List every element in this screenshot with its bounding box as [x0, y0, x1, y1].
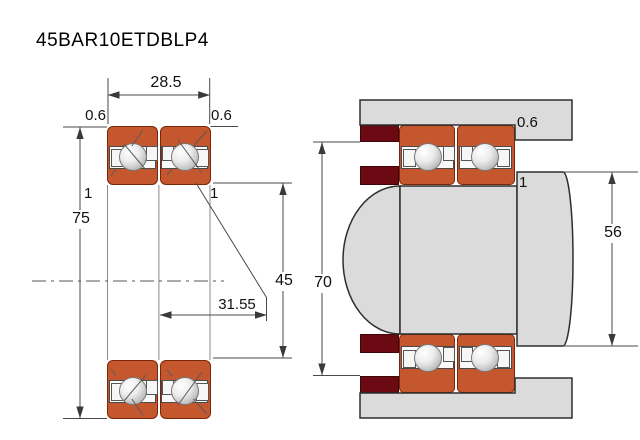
bearing-drawing: 45BAR10ETDBLP4: [0, 0, 640, 440]
bearing-ball: [171, 143, 199, 171]
outer-spacer-ring-top: [360, 125, 399, 142]
cage-pocket: [443, 146, 455, 161]
bore-outline-lines: [108, 185, 211, 360]
dim-label-spacer-bore: 70: [304, 274, 342, 293]
dim-label-housing-chamfer: 0.6: [517, 114, 538, 132]
bearing-ball: [471, 143, 499, 171]
inner-spacer-ring-bottom: [360, 334, 399, 353]
bearing-ball: [171, 377, 199, 405]
shaft-shoulder: [517, 172, 573, 346]
cage-pocket: [146, 146, 158, 161]
dim-label-shoulder: 56: [594, 224, 632, 243]
shaft-body: [400, 186, 517, 334]
dim-label-inner-chamfer-right: 1: [210, 185, 218, 203]
dim-label-chamfer-right: 0.6: [211, 107, 232, 125]
dim-label-shaft-chamfer: 1: [519, 174, 527, 192]
outer-spacer-ring-bottom: [360, 376, 399, 393]
load-center-leader: [196, 183, 267, 298]
dim-label-load-center: 31.55: [213, 296, 261, 314]
dim-label-chamfer-left: 0.6: [76, 107, 106, 125]
dim-label-width: 28.5: [138, 74, 194, 93]
bearing-ball: [414, 344, 442, 372]
bearing-ball: [471, 344, 499, 372]
part-number-title: 45BAR10ETDBLP4: [36, 30, 209, 52]
dim-label-od: 75: [62, 210, 100, 229]
inner-spacer-ring-top: [360, 166, 399, 185]
cage-pocket: [146, 380, 158, 395]
bearing-ball: [414, 143, 442, 171]
dim-label-inner-chamfer-left: 1: [84, 185, 92, 203]
cage-pocket: [443, 347, 455, 362]
shaft-left-end: [343, 186, 400, 334]
dim-label-bore: 45: [266, 272, 302, 291]
bearing-ball: [119, 143, 147, 171]
bearing-ball: [119, 377, 147, 405]
